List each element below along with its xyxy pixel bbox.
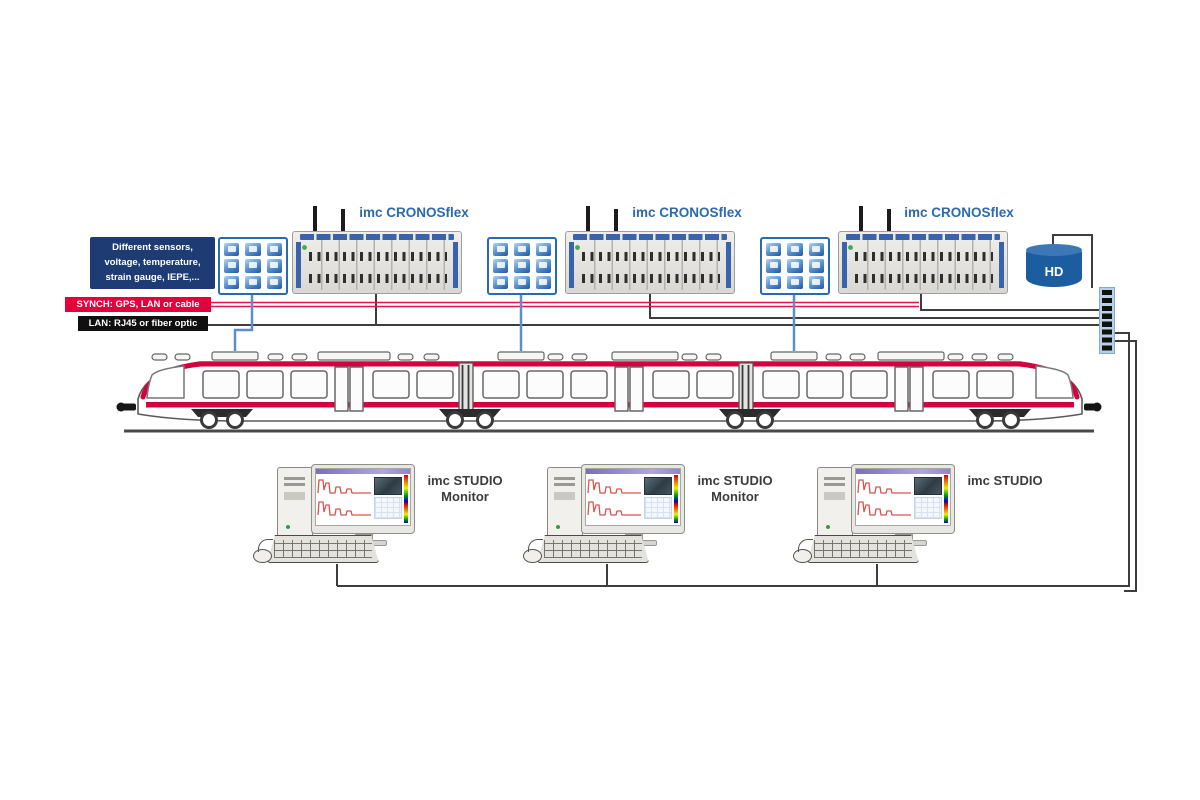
monitor-icon <box>851 464 955 534</box>
sensor-cluster-2 <box>487 237 557 295</box>
sensor-cluster-3 <box>760 237 830 295</box>
workstation-label-line: imc STUDIO <box>410 473 520 489</box>
sensor-icon <box>766 259 781 272</box>
workstation-1: imc STUDIO Monitor <box>255 461 525 581</box>
screen-table-panel <box>374 497 402 519</box>
sensor-info-line: voltage, temperature, <box>104 257 200 268</box>
workstation-label-line: imc STUDIO <box>950 473 1060 489</box>
imc-studio-screen <box>855 468 951 526</box>
device-label-2: imc CRONOSflex <box>622 205 752 220</box>
sensor-icon <box>787 259 802 272</box>
screen-table-panel <box>644 497 672 519</box>
sensor-icon <box>267 276 282 289</box>
monitor-icon <box>311 464 415 534</box>
sensor-icon <box>245 259 260 272</box>
pc-tower-icon <box>277 467 313 539</box>
sensor-icon <box>536 243 551 256</box>
pc-tower-icon <box>547 467 583 539</box>
sensor-icon <box>787 243 802 256</box>
synch-banner: SYNCH: GPS, LAN or cable <box>65 297 211 312</box>
connection-lines-layer <box>0 0 1200 800</box>
cronosflex-device-2 <box>565 231 735 294</box>
screen-photo-panel <box>374 477 402 495</box>
screen-photo-panel <box>644 477 672 495</box>
device-label-3: imc CRONOSflex <box>894 205 1024 220</box>
sensor-icon <box>245 243 260 256</box>
sensor-icon <box>224 259 239 272</box>
sensor-icon <box>224 276 239 289</box>
sensor-icon <box>267 259 282 272</box>
sensor-icon <box>245 276 260 289</box>
sensor-info-line: strain gauge, IEPE,... <box>106 272 200 283</box>
sensor-info-line: Different sensors, <box>112 242 193 253</box>
workstation-3: imc STUDIO <box>795 461 1065 581</box>
sensor-icon <box>766 276 781 289</box>
screen-curves <box>317 476 375 522</box>
sensor-icon <box>514 243 529 256</box>
screen-titlebar <box>316 469 410 474</box>
imc-studio-screen <box>585 468 681 526</box>
sensor-icon <box>493 259 508 272</box>
device-label-1: imc CRONOSflex <box>349 205 479 220</box>
sensor-icon <box>224 243 239 256</box>
screen-curves <box>857 476 915 522</box>
imc-studio-screen <box>315 468 411 526</box>
keyboard-icon <box>537 535 649 563</box>
screen-colorbar <box>674 475 678 523</box>
workstation-label-line: imc STUDIO <box>680 473 790 489</box>
train-illustration <box>117 352 1102 431</box>
workstation-label-1: imc STUDIO Monitor <box>410 473 520 506</box>
lan-banner: LAN: RJ45 or fiber optic <box>78 316 208 331</box>
keyboard-icon <box>807 535 919 563</box>
synch-line <box>208 303 919 307</box>
sensor-icon <box>514 276 529 289</box>
mouse-icon <box>253 549 272 563</box>
sensor-icon <box>514 259 529 272</box>
sensor-icon <box>766 243 781 256</box>
sensor-icon <box>809 276 824 289</box>
workstation-label-line: Monitor <box>410 489 520 505</box>
cronosflex-device-3 <box>838 231 1008 294</box>
sensor-info-box: Different sensors, voltage, temperature,… <box>90 237 215 289</box>
screen-table-panel <box>914 497 942 519</box>
sensor-icon <box>787 276 802 289</box>
sensor-icon <box>809 243 824 256</box>
workstation-2: imc STUDIO Monitor <box>525 461 795 581</box>
screen-photo-panel <box>914 477 942 495</box>
pc-tower-icon <box>817 467 853 539</box>
screen-colorbar <box>404 475 408 523</box>
hd-storage-icon: HD <box>1026 249 1082 287</box>
workstation-label-line: Monitor <box>680 489 790 505</box>
mouse-icon <box>793 549 812 563</box>
sensor-cluster-1 <box>218 237 288 295</box>
diagram-canvas: Different sensors, voltage, temperature,… <box>0 0 1200 800</box>
keyboard-icon <box>267 535 379 563</box>
sensor-icon <box>493 276 508 289</box>
cronosflex-device-1 <box>292 231 462 294</box>
sensor-icon <box>267 243 282 256</box>
screen-titlebar <box>586 469 680 474</box>
sensor-icon <box>493 243 508 256</box>
sensor-icon <box>536 259 551 272</box>
monitor-icon <box>581 464 685 534</box>
workstation-label-2: imc STUDIO Monitor <box>680 473 790 506</box>
screen-colorbar <box>944 475 948 523</box>
screen-titlebar <box>856 469 950 474</box>
sensor-icon <box>809 259 824 272</box>
network-connector-strip <box>1099 287 1115 354</box>
workstation-label-3: imc STUDIO <box>950 473 1060 489</box>
mouse-icon <box>523 549 542 563</box>
sensor-icon <box>536 276 551 289</box>
screen-curves <box>587 476 645 522</box>
